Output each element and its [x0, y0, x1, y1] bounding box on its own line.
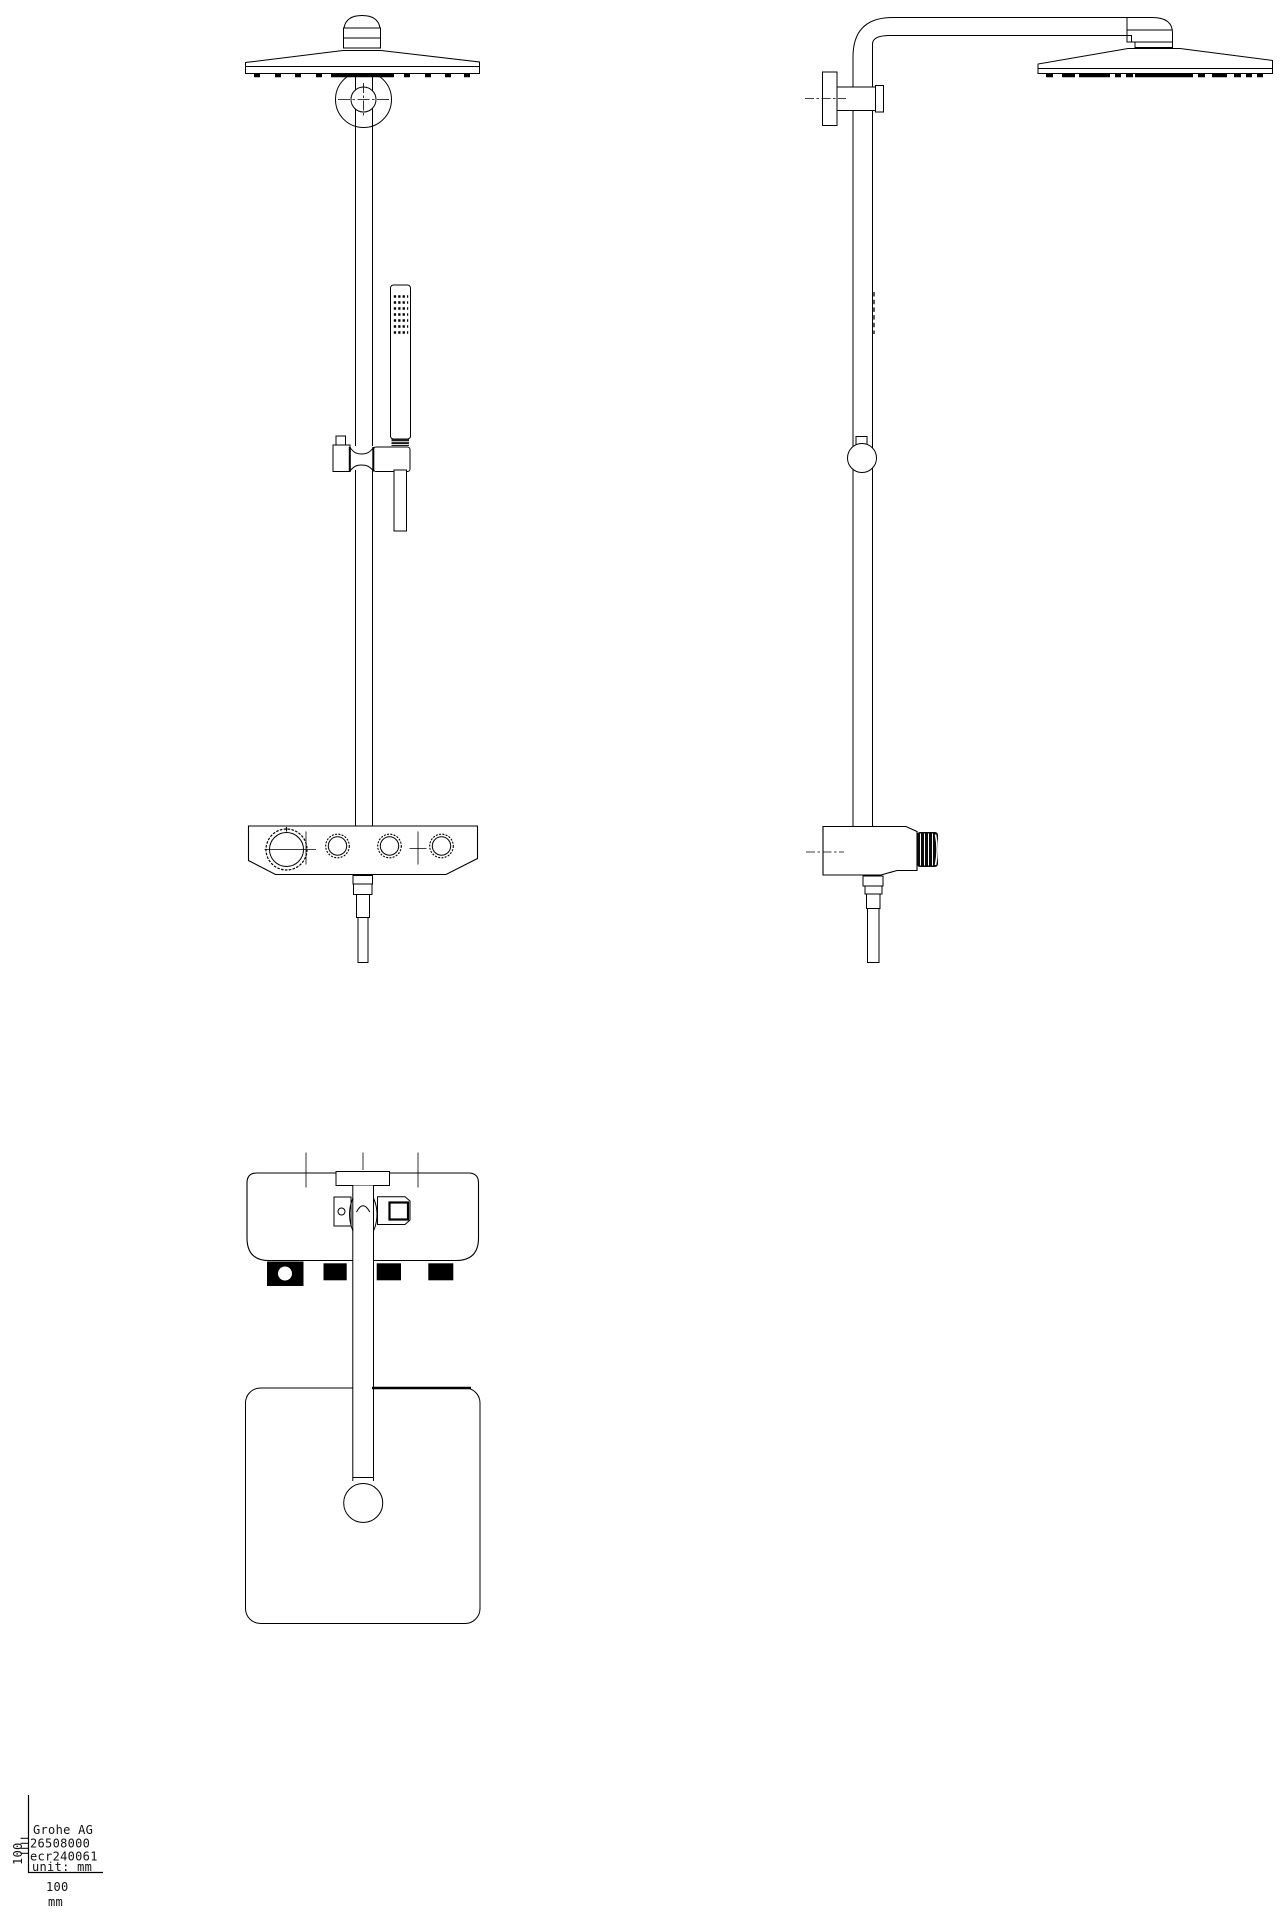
- plan-view: [246, 1153, 481, 1624]
- product-number: 26508000: [30, 1837, 90, 1851]
- smartcontrol-button-3: [430, 834, 454, 858]
- mixer-shelf-front: [249, 826, 478, 875]
- smartcontrol-button-1: [326, 834, 350, 858]
- technical-drawing-sheet: Grohe AG 26508000 ecr240061 unit: mm 100…: [0, 0, 1285, 1920]
- shower-system-drawing: Grohe AG 26508000 ecr240061 unit: mm 100…: [0, 0, 1285, 1920]
- scale-horizontal-value: 100: [46, 1880, 69, 1894]
- smartcontrol-button-2: [378, 834, 402, 858]
- head-connector-side: [1127, 18, 1173, 48]
- right-fitting-plan: [378, 1197, 411, 1225]
- scale-vertical-value: 100: [11, 1842, 25, 1865]
- scale-horizontal-unit: mm: [48, 1895, 63, 1909]
- front-view: [246, 16, 480, 963]
- title-block: Grohe AG 26508000 ecr240061 unit: mm 100…: [11, 1823, 98, 1909]
- mixer-body-side: [806, 827, 938, 876]
- hand-shower-front: [391, 285, 411, 447]
- hand-shower-handle: [394, 470, 407, 531]
- shower-head-front: [246, 51, 480, 74]
- side-view: [805, 18, 1273, 963]
- ceiling-connector-cap: [344, 16, 381, 49]
- left-fitting-plan: [334, 1197, 351, 1226]
- hose-outlet-front: [353, 876, 373, 963]
- arm-pipe-plan: [353, 1186, 374, 1485]
- hose-outlet-side: [863, 876, 883, 963]
- company-name: Grohe AG: [33, 1823, 93, 1837]
- unit-label: unit: mm: [32, 1860, 92, 1874]
- riser-pipe-side: [853, 18, 1127, 827]
- wall-mount-side: [805, 72, 884, 126]
- shower-head-side: [1038, 49, 1273, 74]
